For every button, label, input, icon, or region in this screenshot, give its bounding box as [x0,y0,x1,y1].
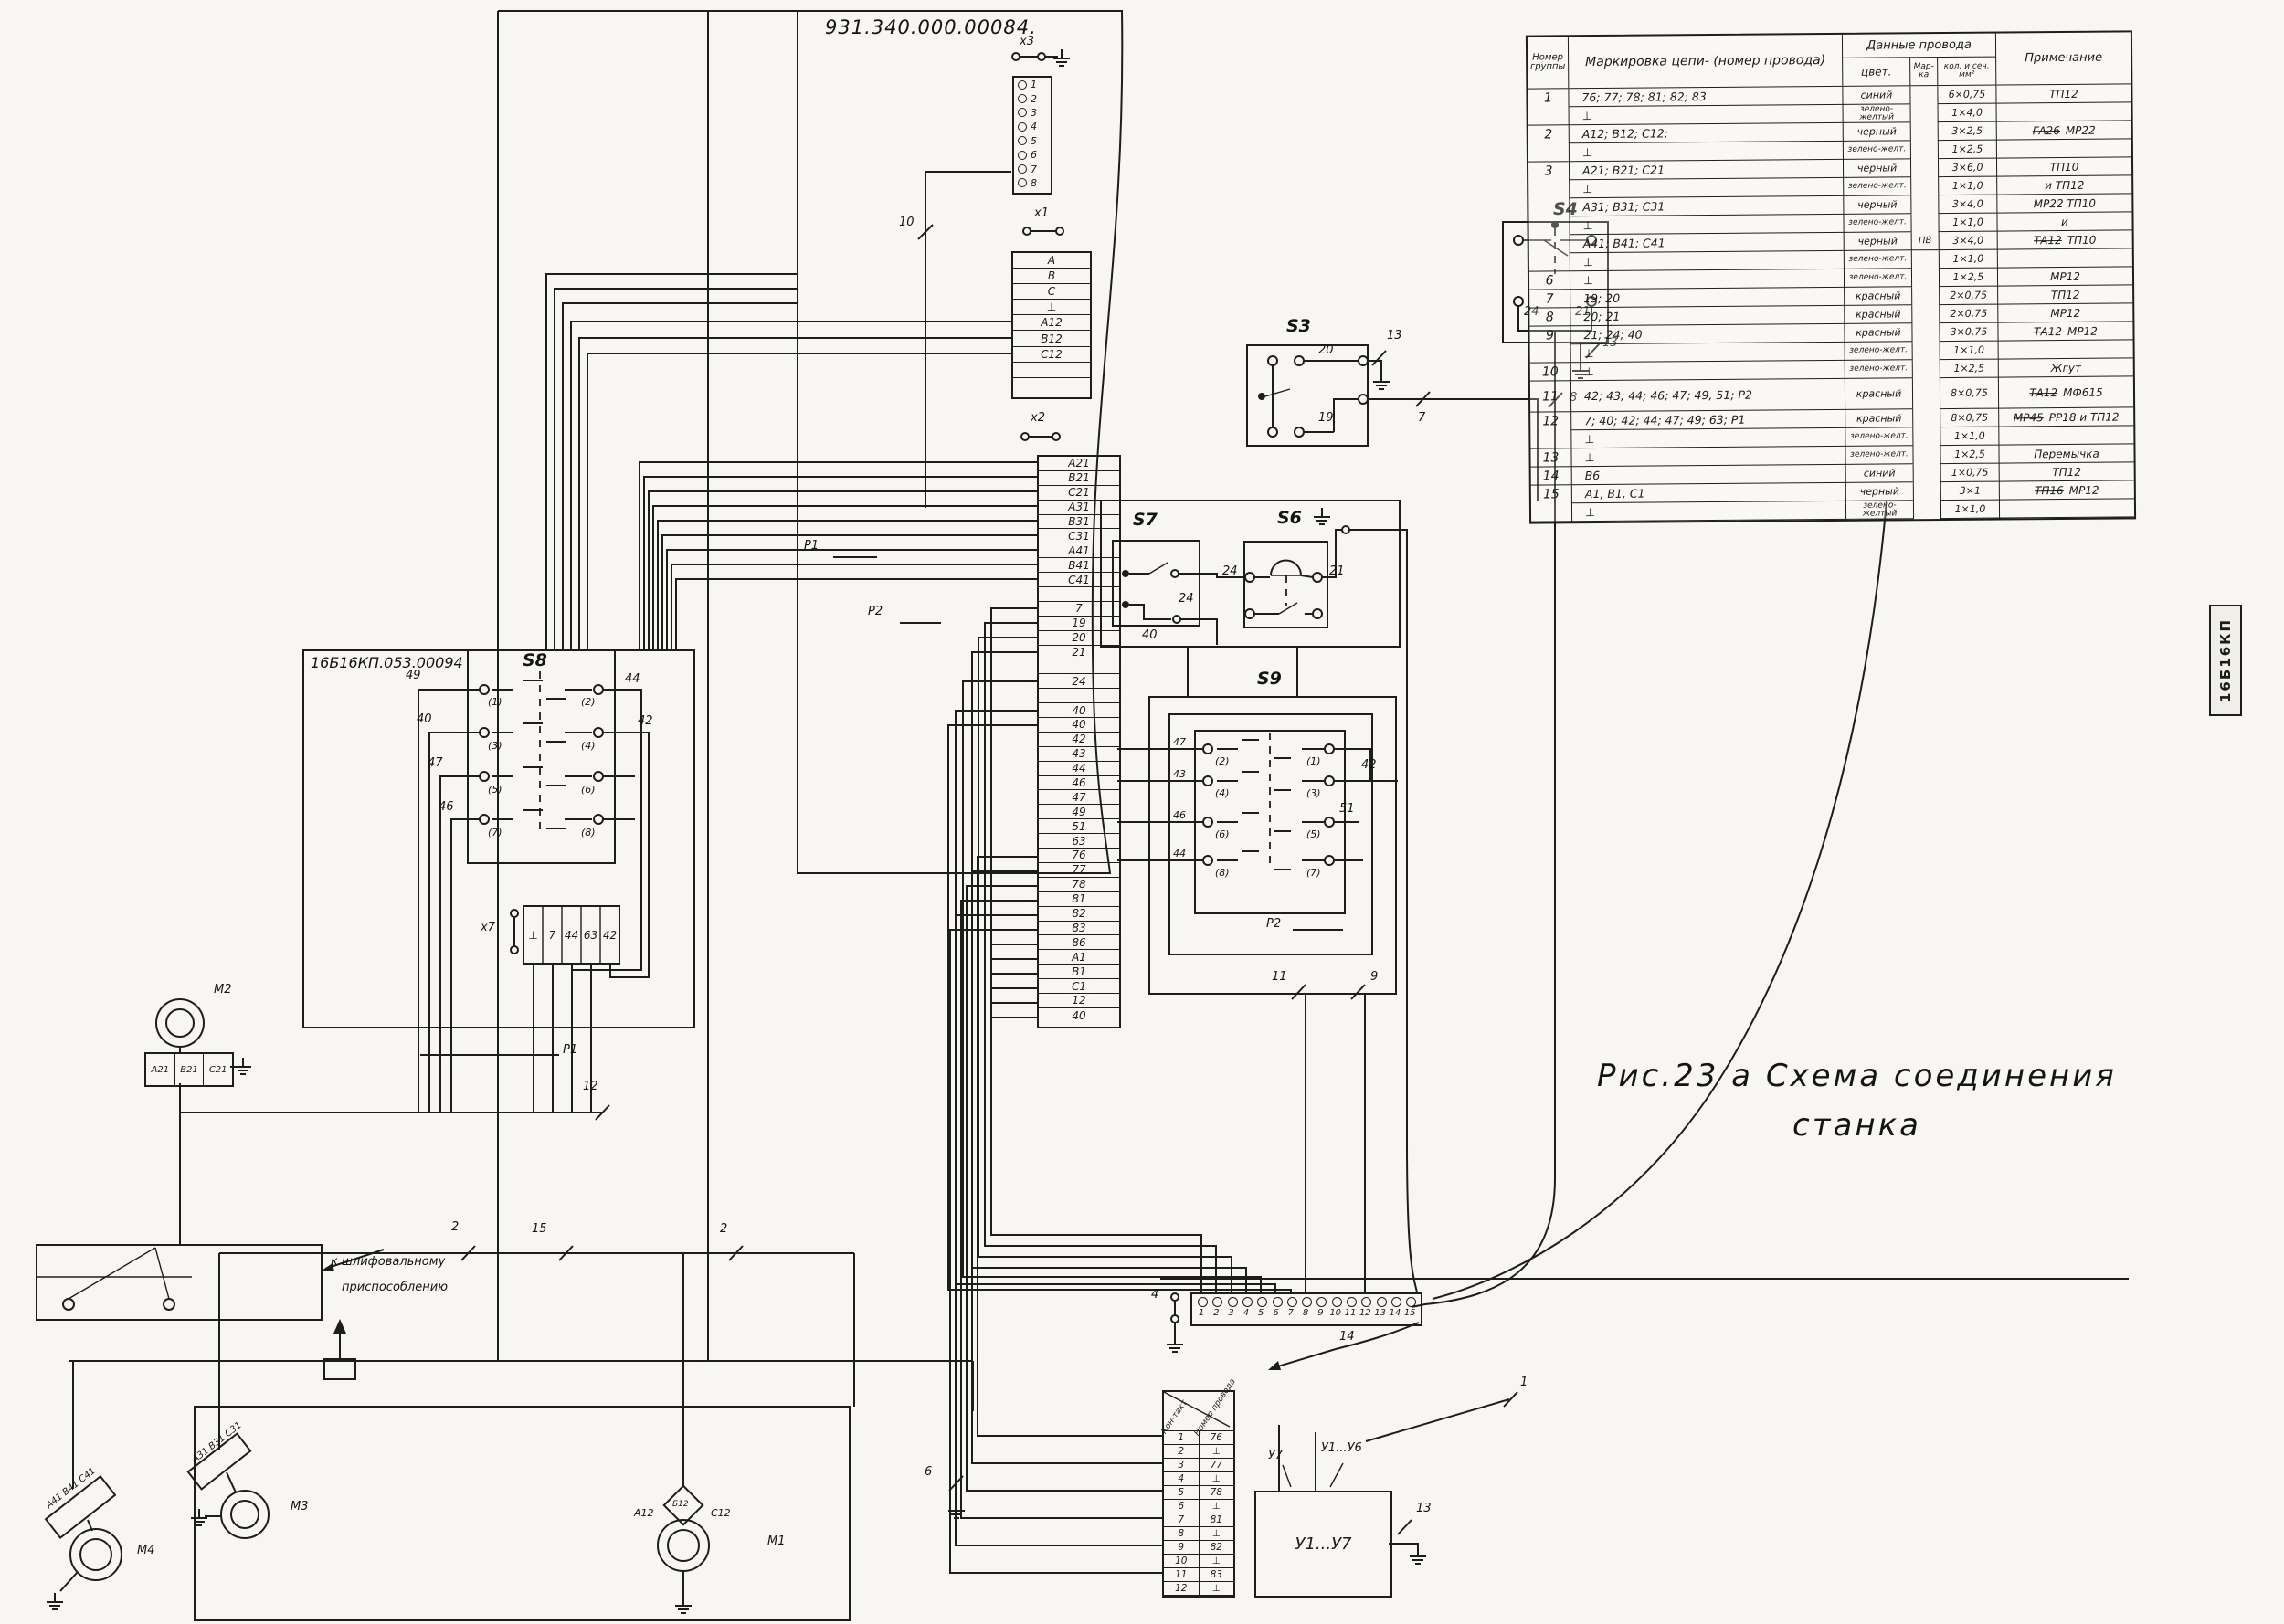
x1-pin-row: С12 [1013,347,1090,363]
wt-group: 14 [1531,467,1571,485]
x2-pin-row: С1 [1039,979,1119,994]
contact-wire: 82 [1200,1541,1234,1555]
wt-group [1528,143,1569,162]
x2-pin-row: 40 [1039,718,1119,733]
wt-note-text: Жгут [2051,361,2081,374]
wt-note [1998,340,2133,359]
s9-wire-44: 44 [1173,848,1186,859]
wt-qty: 3×0,75 [1939,323,1997,343]
connector-x3-pins: 12345678 [1012,76,1052,195]
contact-table-header-contact: Кон-такт [1160,1398,1190,1436]
wt-note-struck: ТП16 [2035,484,2064,497]
s9-contact-2: (2) [1215,755,1230,767]
wt-group: 10 [1530,363,1570,381]
wt-group: 8 [1529,308,1570,326]
wire-12-label: 12 [583,1080,598,1093]
wt-color: красный [1844,287,1911,306]
x1-pin-label: В12 [1041,332,1063,345]
s8-contact-4: (4) [581,740,596,752]
strip-pin-circle [1332,1297,1342,1307]
x1-pin-row [1013,363,1090,378]
wt-group: 9 [1529,326,1570,344]
x3-pin-row: 1 [1014,78,1051,91]
wt-color: зелено-желт. [1844,250,1911,269]
s8-contact-1: (1) [488,696,502,708]
wire-table-header: Номер группы Маркировка цепи- (номер про… [1528,32,2131,89]
x2-pin-row: А31 [1039,501,1119,515]
motor-m1-label: М1 [767,1534,786,1548]
wt-qty: 3×4,0 [1938,195,1996,215]
contact-number: 4 [1164,1472,1200,1486]
contact-number: 8 [1164,1527,1200,1541]
wt-qty: 3×4,0 [1939,232,1997,251]
s8-wire-46: 46 [439,800,454,814]
x1-pin-label: А12 [1041,316,1062,329]
x2-pin-label: С21 [1068,486,1090,499]
contact-number: 10 [1164,1555,1200,1568]
grinding-note-line2: приспособлению [342,1281,448,1294]
x2-pin-label: А21 [1068,457,1089,469]
connector-x7-label: х7 [481,921,495,934]
wt-note [1998,426,2133,445]
drawing-number-left-panel: 16Б16КП.053.00094 [311,654,463,671]
strip-pin-number: 7 [1284,1308,1298,1318]
contact-number: 11 [1164,1568,1200,1582]
contact-number: 7 [1164,1513,1200,1527]
x2-pin-row: 43 [1039,747,1119,762]
x1-pin-label: ⊥ [1047,301,1056,313]
wt-note: МР22 ТП10 [1996,194,2131,213]
x2-pin-label: А1 [1072,951,1086,964]
x3-pin-number: 4 [1031,121,1037,132]
strip-pin-circle [1377,1297,1387,1307]
x2-pin-row: В21 [1039,471,1119,486]
wire-6-label: 6 [925,1465,932,1479]
s7-wire-24: 24 [1179,592,1194,606]
motor-m1-wire-c12: С12 [711,1507,731,1519]
wt-marka [1912,427,1940,446]
x1-pin-row: ⊥ [1013,300,1090,315]
wt-qty: 1×2,5 [1938,141,1996,160]
hdr-note: Примечание [1995,32,2131,84]
wt-note: Перемычка [1998,444,2133,463]
s9-wire-43: 43 [1173,768,1186,780]
wt-group: 7 [1529,290,1570,308]
wt-note-struck: ГА26 [2033,124,2060,137]
x3-pin-circle [1018,178,1027,187]
wt-note-text: МР12 [2050,269,2080,282]
wt-marka [1909,86,1937,104]
x2-pin-row: 82 [1039,907,1119,922]
s8-contact-2: (2) [581,696,596,708]
wt-marking: ⊥ [1570,343,1845,363]
ybox-u7-label: У7 [1268,1449,1283,1462]
wt-marka [1910,104,1938,122]
s9-contact-4: (4) [1215,787,1230,799]
x2-pin-label: 63 [1072,835,1085,848]
contact-table-row: 781 [1164,1513,1233,1527]
wt-color: черный [1843,195,1910,215]
s8-contact-3: (3) [488,740,502,752]
wt-note-text: и ТП12 [2045,178,2084,191]
wt-qty: 1×1,0 [1938,214,1996,233]
x2-pin-row: 77 [1039,863,1119,878]
x2-pin-row: 63 [1039,834,1119,849]
wire-marking-table: Номер группы Маркировка цепи- (номер про… [1526,30,2136,523]
ybox-u1-u6-label: У1...У6 [1321,1441,1362,1455]
strip-pin-circle [1347,1297,1357,1307]
wt-marking: А1, В1, С1 [1571,483,1845,503]
x3-pin-circle [1018,80,1027,90]
wt-note-text: РР18 и ТП12 [2049,410,2120,424]
wt-qty: 1×1,0 [1940,427,1998,447]
wt-note [1997,248,2132,268]
x2-pin-row: В1 [1039,965,1119,979]
wt-note: ТП16МР12 [1999,480,2134,500]
x2-pin-label: 49 [1072,806,1085,818]
x3-pin-number: 3 [1031,107,1037,119]
wt-marking: А12; В12; С12; [1569,123,1843,143]
wt-note: МР45РР18 и ТП12 [1998,407,2133,427]
connector-x1-label: х1 [1034,206,1049,220]
wt-note: и ТП12 [1996,175,2131,195]
wt-marka [1910,177,1938,195]
wt-color: зелено-желтый [1843,104,1910,123]
strip-pin-circle [1361,1297,1371,1307]
x2-pin-label: 7 [1075,602,1083,615]
s9-wire-47: 47 [1173,736,1186,748]
wire-table-row: 1142; 43; 44; 46; 47; 49, 51; Р2красный8… [1530,376,2133,412]
wt-note-text: и [2061,215,2068,227]
wt-note: ТА12МФ615 [1998,376,2133,408]
wt-note [1999,499,2134,518]
x1-pin-row: В12 [1013,331,1090,346]
x2-pin-label: 40 [1072,704,1085,717]
wt-note-text: ТП10 [2050,160,2079,173]
wt-marka [1912,446,1940,464]
x2-pin-label: В31 [1068,515,1090,528]
ybox-text: У1...У7 [1295,1534,1351,1554]
wt-marka: ПВ [1911,232,1939,250]
x2-pin-row [1039,659,1119,674]
wt-marking: ⊥ [1570,361,1845,381]
x2-pin-label: 77 [1072,863,1085,876]
wt-marka [1912,409,1940,427]
connector-x1-pins: АВС⊥А12В12С12 [1011,251,1092,399]
x2-pin-label: 20 [1072,631,1085,644]
wt-color: зелено-желт. [1845,342,1912,361]
wt-note: ТП12 [1999,462,2134,481]
contact-table-row: 12⊥ [1164,1582,1233,1596]
wt-marking: ⊥ [1569,215,1843,235]
x2-pin-row: 12 [1039,994,1119,1008]
wire-1-label: 1 [1520,1376,1528,1389]
wt-marka [1910,214,1938,232]
x3-pin-row: 7 [1014,162,1051,175]
hdr-qty: кол. и сеч. мм² [1937,58,1995,86]
x2-pin-label: 81 [1072,892,1085,905]
wt-marking: ⊥ [1571,501,1845,522]
wt-qty: 3×2,5 [1938,122,1996,142]
wt-color: черный [1844,232,1911,251]
x2-pin-row: С31 [1039,529,1119,543]
s8-contact-6: (6) [581,784,596,796]
wt-marka [1913,464,1940,482]
x1-pin-row: А [1013,253,1090,269]
contact-wire: ⊥ [1200,1582,1234,1596]
wt-note: ТП12 [1997,285,2132,304]
wt-marking: ⊥ [1570,251,1844,271]
wt-note [1996,139,2131,158]
wt-marka [1910,195,1938,214]
contact-wire: 78 [1200,1486,1234,1500]
x2-pin-row: 86 [1039,935,1119,950]
hdr-marka: Мар- ка [1909,58,1937,85]
x2-pin-label: 82 [1072,907,1085,920]
x1-pin-row: А12 [1013,315,1090,331]
wire-15-label: 15 [532,1222,547,1236]
wt-marking: 19; 20 [1570,288,1844,308]
figure-caption-line2: станка [1792,1107,1921,1144]
wire-table-row: ⊥зелено-желтый1×1,0 [1531,499,2134,522]
x3-pin-number: 2 [1031,93,1037,105]
wt-marka [1911,287,1939,305]
strip-pin-number: 15 [1402,1308,1417,1318]
wt-color: зелено-желтый [1845,501,1913,520]
wt-note [1996,102,2131,121]
x2-pin-label: 43 [1072,747,1085,760]
x2-pin-label: 83 [1072,922,1085,934]
hdr-data: Данные провода [1842,34,1995,58]
wt-qty: 3×6,0 [1938,159,1996,178]
wt-color: черный [1845,482,1913,501]
contact-wire: 76 [1200,1431,1234,1445]
hdr-group: Номер группы [1528,37,1568,88]
x7-cell: ⊥ [523,906,543,964]
x3-pin-row: 4 [1014,120,1051,133]
switch-s7-label: S7 [1133,510,1158,530]
x3-pin-circle [1018,164,1027,174]
contact-table-row: 578 [1164,1486,1233,1500]
s8-wire-49: 49 [406,669,421,682]
switch-s9-label: S9 [1257,669,1282,689]
s8-wire-44: 44 [625,672,640,686]
wt-marking: ⊥ [1569,105,1843,125]
x3-pin-row: 8 [1014,176,1051,190]
wt-qty: 8×0,75 [1940,409,1998,428]
wt-color: синий [1845,464,1913,483]
wt-color: зелено-желт. [1843,177,1910,196]
x2-pin-label: В21 [1068,471,1090,484]
wt-note-text: ТП12 [2052,465,2081,478]
wire-13-ybox-label: 13 [1416,1502,1432,1515]
wt-qty: 2×0,75 [1939,287,1997,306]
wt-group [1528,198,1569,216]
wire-2-label: 2 [451,1220,459,1234]
x3-pin-row: 5 [1014,134,1051,148]
wt-group [1531,503,1571,522]
wt-marking: 7; 40; 42; 44; 47; 49; 63; Р1 [1570,410,1845,430]
strip-pin-number: 10 [1328,1308,1343,1318]
grinding-note-line1: к шлифовальному [331,1255,445,1269]
wt-qty: 1×1,0 [1938,177,1996,196]
wt-group: 6 [1529,271,1570,290]
strip-pin-number: 12 [1358,1308,1372,1318]
x7-cell: 63 [581,906,600,964]
x1-pin-label: С12 [1041,348,1063,361]
wt-marking: А31; В31; С31 [1569,196,1843,216]
wt-note-struck: МР45 [2014,411,2044,424]
wt-color: зелено-желт. [1843,214,1910,233]
s9-contact-7: (7) [1306,867,1321,879]
motor-m1-wire-b12: Б12 [672,1500,689,1509]
strip-pin-circle [1406,1297,1416,1307]
wt-color: синий [1842,86,1909,105]
wire-2b-label: 2 [720,1222,727,1236]
x3-pin-number: 7 [1031,163,1037,175]
m2-wire-b21: В21 [175,1054,205,1085]
wt-group [1528,216,1569,235]
contact-wire: 83 [1200,1568,1234,1582]
s9-contact-5: (5) [1306,828,1321,840]
wt-color: зелено-желт. [1845,446,1912,465]
motor-m3-label: М3 [291,1500,309,1513]
contact-wire: ⊥ [1200,1445,1234,1459]
motor-m4-label: М4 [137,1544,155,1557]
schematic-sheet: 931.340.000.00084. 16Б16КП.053.00094 Рис… [0,0,2284,1624]
strip-pin-circle [1391,1297,1401,1307]
x2-pin-row: 42 [1039,733,1119,747]
x7-cell: 7 [543,906,562,964]
wt-qty: 3×1 [1940,482,1999,501]
solenoid-group-box: У1...У7 [1254,1491,1392,1598]
contact-table-row: 982 [1164,1541,1233,1555]
x2-pin-label: 44 [1072,762,1085,775]
wt-note-struck: ТА12 [2029,386,2057,399]
wire-11-label: 11 [1272,970,1287,984]
wt-marka [1912,360,1940,378]
wt-marka [1912,378,1940,409]
x2-pin-row [1039,587,1119,602]
contact-number: 6 [1164,1500,1200,1513]
wt-qty: 1×2,5 [1940,446,1998,465]
contact-table-row: 4⊥ [1164,1472,1233,1486]
wt-qty: 6×0,75 [1937,86,1995,105]
contact-wire: ⊥ [1200,1472,1234,1486]
wt-note: МР12 [1997,267,2132,286]
s9-wire-46: 46 [1173,809,1186,821]
wt-group [1528,107,1569,125]
contact-table-header: Кон-такт Номер провода [1164,1392,1233,1431]
x2-pin-row: А1 [1039,950,1119,965]
wt-qty: 8×0,75 [1940,378,1998,410]
wt-marking: 76; 77; 78; 81; 82; 83 [1568,87,1842,107]
wt-note: ТП12 [1995,84,2131,103]
s8-contact-8: (8) [581,827,596,838]
s7-wire-40: 40 [1142,628,1158,642]
s6-wire-24: 24 [1222,564,1238,578]
wt-group [1529,235,1570,253]
s9-contact-6: (6) [1215,828,1230,840]
wt-note-text: ТП10 [2067,233,2097,246]
x3-pin-row: 3 [1014,106,1051,120]
x2-pin-row: С41 [1039,573,1119,587]
x2-pin-label: С31 [1068,530,1090,543]
strip-pin-number: 6 [1269,1308,1284,1318]
switch-s3-label: S3 [1286,316,1311,336]
x2-pin-row [1039,689,1119,703]
wt-group [1529,253,1570,271]
wt-color: красный [1845,378,1912,410]
x1-pin-row [1013,378,1090,394]
wt-group: 15 [1531,485,1571,503]
strip-pin-number: 14 [1388,1308,1402,1318]
x3-pin-circle [1018,122,1027,132]
wt-marka [1911,323,1939,342]
strip-pin-circle [1257,1297,1267,1307]
wt-color: красный [1844,323,1911,343]
x2-pin-label: 76 [1072,849,1085,861]
wt-note-text: МР22 [2066,123,2096,136]
wt-note-struck: ТА12 [2034,325,2062,338]
x1-pin-label: А [1048,254,1055,267]
x3-pin-number: 5 [1031,135,1037,147]
wt-marking: ⊥ [1570,269,1844,290]
x1-pin-row: С [1013,284,1090,300]
relay-p2-s9-label: Р2 [1266,917,1281,931]
x3-pin-circle [1018,94,1027,103]
contact-table-row: 8⊥ [1164,1527,1233,1541]
wt-marking: 20; 21 [1570,306,1844,326]
s6-wire-21: 21 [1329,564,1345,578]
wire-13-s3-label: 13 [1387,329,1402,343]
s3-wire-20: 20 [1318,343,1334,357]
x2-pin-row: 76 [1039,849,1119,863]
x2-pin-row: 19 [1039,617,1119,631]
x2-pin-row: 44 [1039,762,1119,776]
wt-marking: А41; В41; С41 [1570,233,1844,253]
x3-pin-circle [1018,151,1027,160]
x3-pin-circle [1018,108,1027,117]
contact-wire: 81 [1200,1513,1234,1527]
strip-pin-circle [1212,1297,1222,1307]
strip-pin-number: 13 [1373,1308,1388,1318]
wt-group: 3 [1528,162,1569,180]
strip-pin-number: 4 [1239,1308,1253,1318]
wire-10-label: 10 [899,216,915,229]
x7-cell: 44 [562,906,581,964]
wt-note: ТА12МР12 [1997,322,2132,341]
x2-pin-label: С41 [1068,574,1090,586]
wt-marking: ⊥ [1569,142,1843,162]
wt-note: ТА12ТП10 [1997,230,2132,249]
contact-table-rows: 1762⊥3774⊥5786⊥7818⊥98210⊥118312⊥ [1164,1431,1233,1596]
x2-pin-row: В31 [1039,515,1119,530]
s9-contact-3: (3) [1306,787,1321,799]
wt-note-text: МФ615 [2063,385,2103,398]
x2-pin-row: 24 [1039,674,1119,689]
s9-contact-1: (1) [1306,755,1321,767]
wt-color: зелено-желт. [1843,141,1910,160]
wire-9-label: 9 [1370,970,1378,984]
wt-marka [1912,342,1940,360]
contact-table-row: 377 [1164,1459,1233,1472]
wt-group: 1 [1528,89,1568,107]
wt-marka [1910,141,1938,159]
x2-pin-label: А41 [1068,544,1089,557]
strip-pin-number: 2 [1209,1308,1223,1318]
x2-pin-row: 20 [1039,631,1119,646]
